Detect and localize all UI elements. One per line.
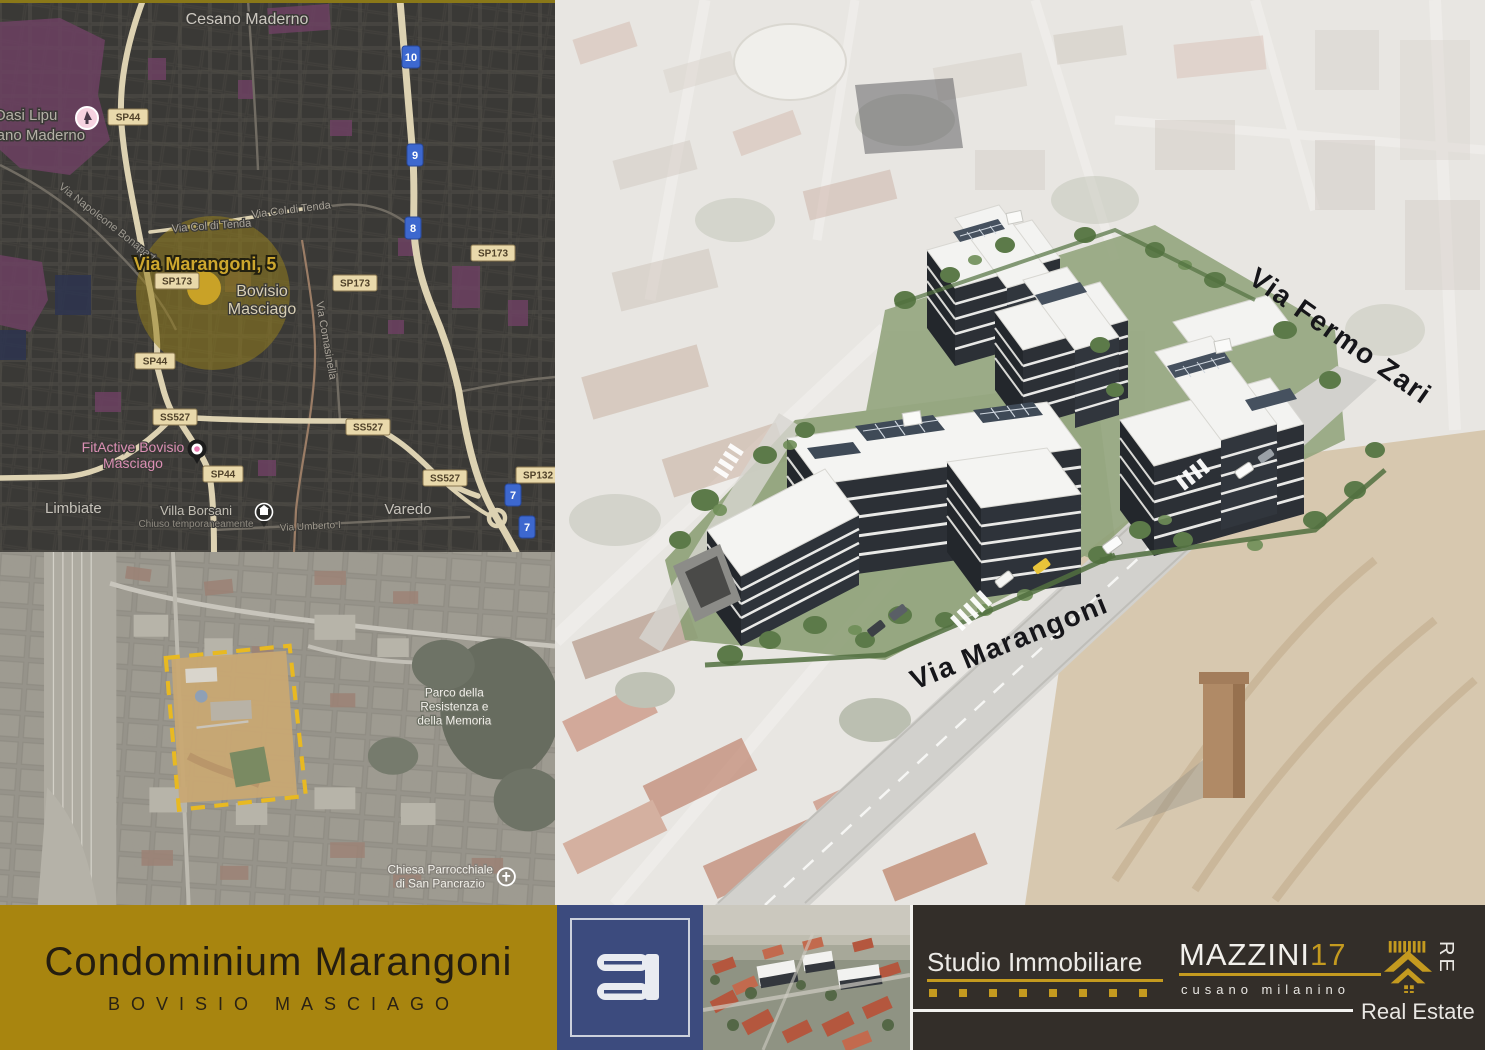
label-parco-2: Resistenza e <box>420 700 489 713</box>
label-bovisio-1: Bovisio <box>236 283 288 300</box>
svg-text:7: 7 <box>510 490 516 502</box>
svg-text:SP44: SP44 <box>116 113 141 124</box>
development-render: Via Fermo Zari Via Marangoni <box>555 0 1485 905</box>
badge-sp132: SP132 <box>516 467 555 483</box>
label-villa-sub: Chiuso temporaneamente <box>138 519 254 530</box>
brand-name: MAZZINI <box>1179 937 1310 972</box>
svg-text:SP173: SP173 <box>340 279 370 290</box>
builder-logo <box>557 905 703 1050</box>
agency-band: Studio Immobiliare MAZZINI17 cusano mila… <box>913 905 1485 1050</box>
route-7a: 7 <box>505 484 521 506</box>
agency-name: Studio Immobiliare <box>927 947 1142 978</box>
label-villa: Villa Borsani <box>160 503 232 518</box>
oasi-park-icon <box>76 107 98 129</box>
builder-b-icon <box>595 948 665 1008</box>
route-7b: 7 <box>519 516 535 538</box>
chiesa-pin-icon <box>498 868 515 885</box>
label-fitactive-2: Masciago <box>103 455 163 471</box>
context-aerial-photo <box>703 905 910 1050</box>
route-8: 8 <box>405 217 421 239</box>
location-map: Cesano Maderno Oasi Lipu Cesano Maderno … <box>0 0 555 552</box>
map-top-border <box>0 0 555 3</box>
brand-underline <box>1179 973 1381 976</box>
label-cesano: Cesano Maderno <box>186 11 309 28</box>
label-chiesa-1: Chiesa Parrocchiale <box>388 864 494 877</box>
svg-text:9: 9 <box>412 150 418 162</box>
satellite-view: Parco della Resistenza e della Memoria C… <box>0 552 555 905</box>
brand-wordmark: MAZZINI17 <box>1179 937 1346 973</box>
svg-text:8: 8 <box>410 223 416 235</box>
title-band: Condominium Marangoni BOVISIO MASCIAGO <box>0 905 557 1050</box>
brand-number: 17 <box>1310 937 1346 972</box>
label-parco-3: della Memoria <box>417 715 491 728</box>
svg-text:SP44: SP44 <box>211 470 236 481</box>
project-title: Condominium Marangoni <box>45 940 513 985</box>
svg-text:7: 7 <box>524 522 530 534</box>
badge-sp44-3: SP44 <box>203 466 243 482</box>
footer: Condominium Marangoni BOVISIO MASCIAGO <box>0 905 1485 1050</box>
svg-text:SP173: SP173 <box>478 249 508 260</box>
brand-tagline: Real Estate <box>1361 999 1475 1025</box>
label-bovisio-2: Masciago <box>228 301 297 318</box>
label-oasi-2: Cesano Maderno <box>0 127 85 144</box>
label-varedo: Varedo <box>384 501 431 518</box>
badge-sp173-2: SP173 <box>155 273 199 289</box>
svg-text:SP132: SP132 <box>523 471 553 482</box>
brand-location: cusano milanino <box>1181 982 1350 997</box>
label-oasi-1: Oasi Lipu <box>0 107 57 124</box>
agency-dotted-line <box>929 989 1147 997</box>
svg-text:SS527: SS527 <box>430 474 460 485</box>
brochure-page: Cesano Maderno Oasi Lipu Cesano Maderno … <box>0 0 1485 1050</box>
route-10: 10 <box>402 46 420 68</box>
label-marker-address: Via Marangoni, 5 <box>134 254 277 274</box>
label-parco-1: Parco della <box>425 686 484 699</box>
label-chiesa-2: di San Pancrazio <box>396 878 486 891</box>
badge-ss527-3: SS527 <box>423 470 467 486</box>
tagline-line <box>913 1009 1353 1012</box>
svg-text:SS527: SS527 <box>353 423 383 434</box>
label-limbiate: Limbiate <box>45 500 102 517</box>
dark-roof-hall <box>855 78 963 154</box>
badge-sp44-2: SP44 <box>135 353 175 369</box>
badge-sp173-1: SP173 <box>471 245 515 261</box>
badge-sp173-3: SP173 <box>333 275 377 291</box>
brand-house-icon <box>1383 941 1433 993</box>
project-subtitle: BOVISIO MASCIAGO <box>97 994 460 1015</box>
svg-text:SS527: SS527 <box>160 413 190 424</box>
label-fitactive-1: FitActive Bovisio <box>82 439 185 455</box>
badge-ss527-1: SS527 <box>153 409 197 425</box>
svg-text:SP44: SP44 <box>143 357 168 368</box>
agency-underline <box>927 979 1163 982</box>
svg-text:SP173: SP173 <box>162 277 192 288</box>
sports-dome <box>734 24 846 100</box>
svg-text:10: 10 <box>405 52 417 64</box>
badge-sp44-1: SP44 <box>108 109 148 125</box>
brand-re: RE <box>1434 941 1457 975</box>
badge-ss527-2: SS527 <box>346 419 390 435</box>
construction-site <box>171 651 297 803</box>
route-9: 9 <box>407 144 423 166</box>
